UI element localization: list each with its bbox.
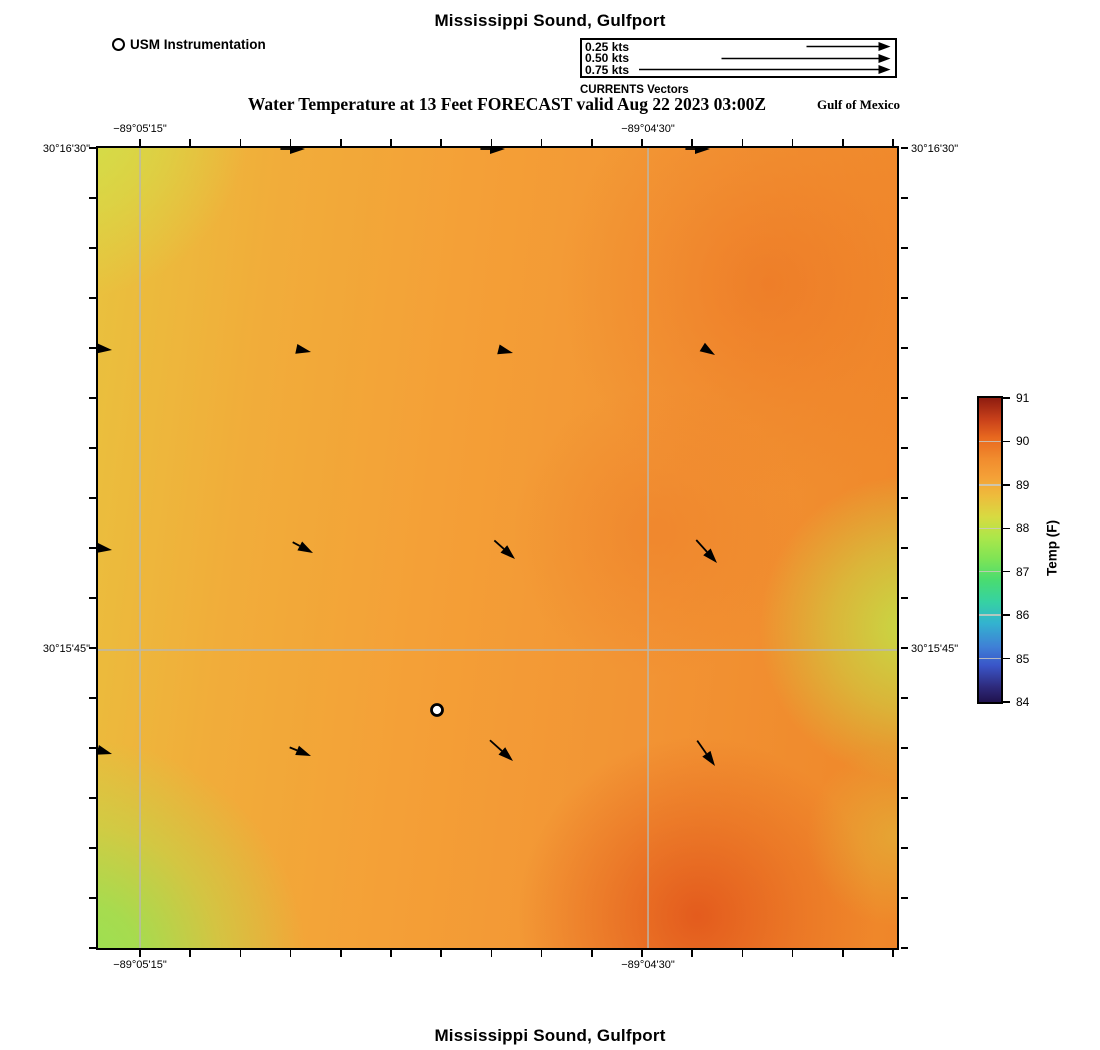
y-axis-tick <box>901 747 908 749</box>
colorbar-gridline <box>979 571 1001 573</box>
x-axis-tick <box>240 950 242 957</box>
y-axis-tick <box>901 297 908 299</box>
y-axis-tick <box>89 497 96 499</box>
colorbar-gridline <box>979 484 1001 486</box>
y-axis-tick <box>901 497 908 499</box>
x-axis-tick <box>591 139 593 146</box>
y-axis-tick <box>89 847 96 849</box>
x-axis-tick <box>139 950 141 957</box>
y-axis-tick <box>89 397 96 399</box>
y-axis-tick <box>901 547 908 549</box>
latitude-label-right: 30°15'45" <box>911 643 958 655</box>
colorbar-tick <box>1003 658 1010 660</box>
colorbar-tick <box>1003 701 1010 703</box>
colorbar-tick-label: 87 <box>1016 565 1029 579</box>
current-vector-icon <box>480 148 505 154</box>
colorbar-tick <box>1003 614 1010 616</box>
current-vector-icon <box>295 344 312 357</box>
bottom-title: Mississippi Sound, Gulfport <box>0 1026 1100 1046</box>
forecast-figure: Mississippi Sound, Gulfport USM Instrume… <box>0 0 1100 1050</box>
y-axis-tick <box>89 547 96 549</box>
x-axis-tick <box>240 139 242 146</box>
x-axis-tick <box>792 139 794 146</box>
x-axis-tick <box>541 139 543 146</box>
colorbar-gridline <box>979 528 1001 530</box>
y-axis-tick <box>901 147 908 149</box>
x-axis-tick <box>189 139 191 146</box>
y-axis-tick <box>89 197 96 199</box>
station-circle-icon <box>112 38 125 51</box>
current-vector-icon <box>487 737 517 765</box>
colorbar-tick-label: 90 <box>1016 434 1029 448</box>
colorbar-gridline <box>979 441 1001 443</box>
longitude-label-bottom: −89°04'30" <box>621 959 675 971</box>
x-axis-tick <box>491 139 493 146</box>
y-axis-tick <box>901 947 908 949</box>
x-axis-tick <box>641 139 643 146</box>
instrumentation-legend-label: USM Instrumentation <box>130 37 266 52</box>
latitude-label-left: 30°16'30" <box>20 143 90 155</box>
colorbar-tick <box>1003 397 1010 399</box>
colorbar-tick <box>1003 528 1010 530</box>
x-axis-tick <box>390 139 392 146</box>
x-axis-tick <box>892 950 894 957</box>
currents-scale-arrow-icon <box>639 53 892 64</box>
y-axis-tick <box>89 147 96 149</box>
y-axis-tick <box>901 597 908 599</box>
currents-scale-arrow-icon <box>639 41 892 52</box>
current-vector-icon <box>98 343 113 355</box>
latitude-label-left: 30°15'45" <box>20 643 90 655</box>
y-axis-tick <box>901 197 908 199</box>
y-axis-tick <box>901 247 908 249</box>
y-axis-tick <box>901 647 908 649</box>
y-axis-tick <box>901 397 908 399</box>
currents-speed-label: 0.25 kts <box>585 42 639 52</box>
longitude-label-top: −89°05'15" <box>113 123 167 135</box>
current-vector-icon <box>288 743 313 761</box>
x-axis-tick <box>641 950 643 957</box>
y-axis-tick <box>89 697 96 699</box>
current-vector-icon <box>491 537 518 563</box>
colorbar-tick <box>1003 484 1010 486</box>
current-vector-icon <box>497 345 514 358</box>
region-label: Gulf of Mexico <box>700 97 900 113</box>
colorbar-tick-label: 88 <box>1016 521 1029 535</box>
x-axis-tick <box>290 950 292 957</box>
current-vector-icon <box>98 543 113 555</box>
usm-station-marker <box>432 705 443 716</box>
x-axis-tick <box>390 950 392 957</box>
y-axis-tick <box>89 297 96 299</box>
latitude-label-right: 30°16'30" <box>911 143 958 155</box>
x-axis-tick <box>541 950 543 957</box>
colorbar-tick-label: 89 <box>1016 478 1029 492</box>
y-axis-tick <box>89 747 96 749</box>
y-axis-tick <box>89 247 96 249</box>
x-axis-tick <box>340 139 342 146</box>
current-vector-icon <box>290 538 315 558</box>
y-axis-tick <box>901 447 908 449</box>
x-axis-tick <box>892 139 894 146</box>
currents-speed-row: 0.75 kts <box>585 64 892 75</box>
current-vector-icon <box>693 537 721 567</box>
page-title: Mississippi Sound, Gulfport <box>0 11 1100 31</box>
currents-scale-arrow-icon <box>639 64 892 75</box>
current-vector-icon <box>685 148 710 154</box>
x-axis-tick <box>340 950 342 957</box>
x-axis-tick <box>691 950 693 957</box>
x-axis-tick <box>691 139 693 146</box>
x-axis-tick <box>591 950 593 957</box>
currents-speed-label: 0.50 kts <box>585 53 639 63</box>
instrumentation-legend: USM Instrumentation <box>112 37 266 52</box>
y-axis-tick <box>89 447 96 449</box>
current-vector-icon <box>280 148 305 154</box>
current-vector-icon <box>693 738 719 769</box>
x-axis-tick <box>792 950 794 957</box>
currents-scale-legend: 0.25 kts0.50 kts0.75 kts <box>580 38 897 78</box>
colorbar-gridline <box>979 658 1001 660</box>
x-axis-tick <box>139 139 141 146</box>
y-axis-tick <box>89 947 96 949</box>
map-overlay-svg <box>98 148 897 948</box>
y-axis-tick <box>901 797 908 799</box>
longitude-label-bottom: −89°05'15" <box>113 959 167 971</box>
x-axis-tick <box>842 950 844 957</box>
colorbar-tick-label: 91 <box>1016 391 1029 405</box>
currents-speed-row: 0.25 kts <box>585 41 892 52</box>
y-axis-tick <box>89 647 96 649</box>
x-axis-tick <box>440 139 442 146</box>
longitude-label-top: −89°04'30" <box>621 123 675 135</box>
currents-speed-label: 0.75 kts <box>585 65 639 75</box>
y-axis-tick <box>89 797 96 799</box>
y-axis-tick <box>901 697 908 699</box>
current-vector-icon <box>700 343 718 359</box>
currents-speed-row: 0.50 kts <box>585 53 892 64</box>
temperature-map <box>96 146 899 950</box>
colorbar-gridline <box>979 614 1001 616</box>
x-axis-tick <box>491 950 493 957</box>
colorbar-axis-label: Temp (F) <box>1045 520 1060 576</box>
x-axis-tick <box>189 950 191 957</box>
y-axis-tick <box>901 347 908 349</box>
colorbar-tick-label: 84 <box>1016 695 1029 709</box>
colorbar-tick-label: 85 <box>1016 652 1029 666</box>
x-axis-tick <box>742 139 744 146</box>
x-axis-tick <box>290 139 292 146</box>
current-vector-icon <box>98 745 113 759</box>
y-axis-tick <box>901 847 908 849</box>
x-axis-tick <box>742 950 744 957</box>
y-axis-tick <box>89 347 96 349</box>
x-axis-tick <box>440 950 442 957</box>
y-axis-tick <box>89 897 96 899</box>
x-axis-tick <box>842 139 844 146</box>
colorbar-tick <box>1003 571 1010 573</box>
colorbar-tick <box>1003 441 1010 443</box>
colorbar-tick-label: 86 <box>1016 608 1029 622</box>
y-axis-tick <box>89 597 96 599</box>
y-axis-tick <box>901 897 908 899</box>
